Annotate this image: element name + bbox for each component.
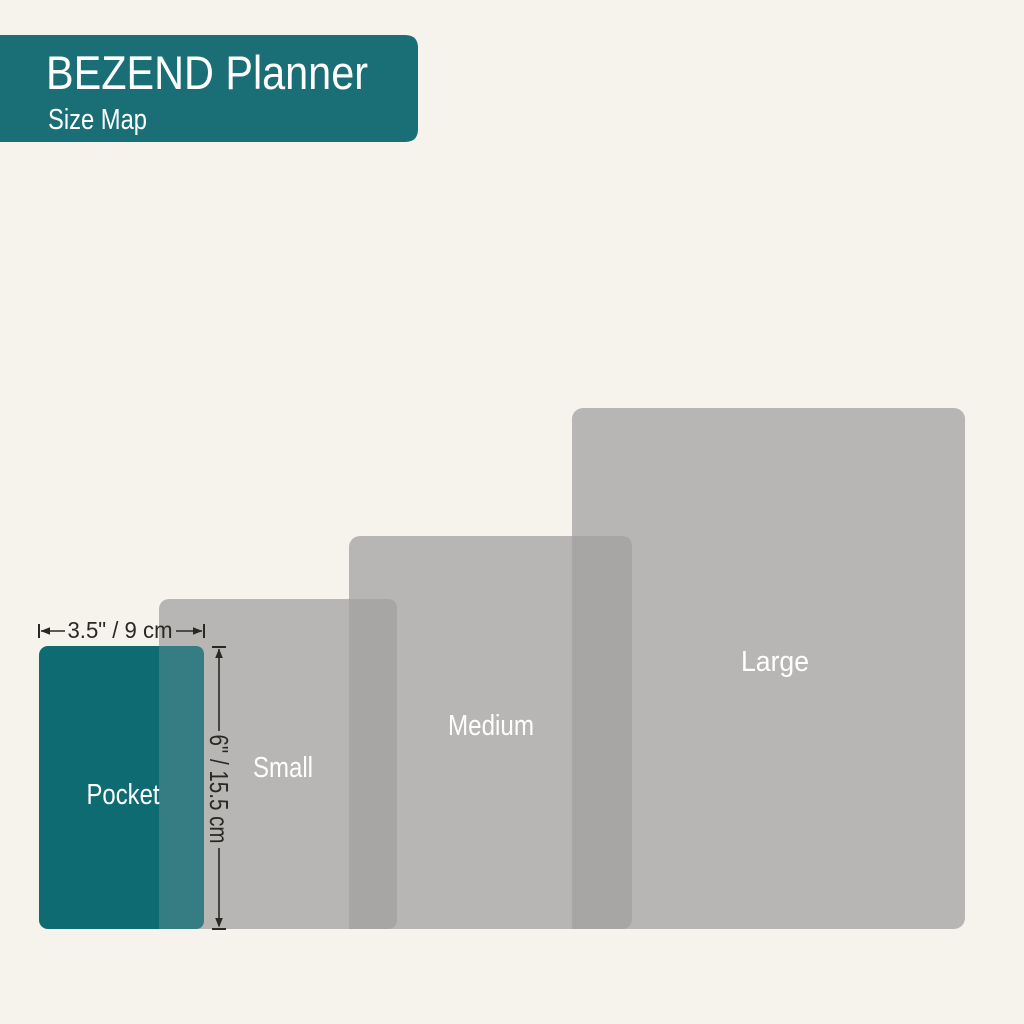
svg-text:Medium: Medium — [448, 710, 534, 742]
svg-text:6" / 15.5 cm: 6" / 15.5 cm — [204, 735, 234, 844]
svg-text:Size Map: Size Map — [48, 104, 147, 136]
svg-text:Large: Large — [741, 646, 809, 678]
svg-text:BEZEND Planner: BEZEND Planner — [46, 46, 368, 99]
svg-text:Small: Small — [253, 752, 313, 784]
svg-text:Pocket: Pocket — [87, 779, 160, 811]
svg-text:3.5" / 9 cm: 3.5" / 9 cm — [68, 617, 173, 643]
